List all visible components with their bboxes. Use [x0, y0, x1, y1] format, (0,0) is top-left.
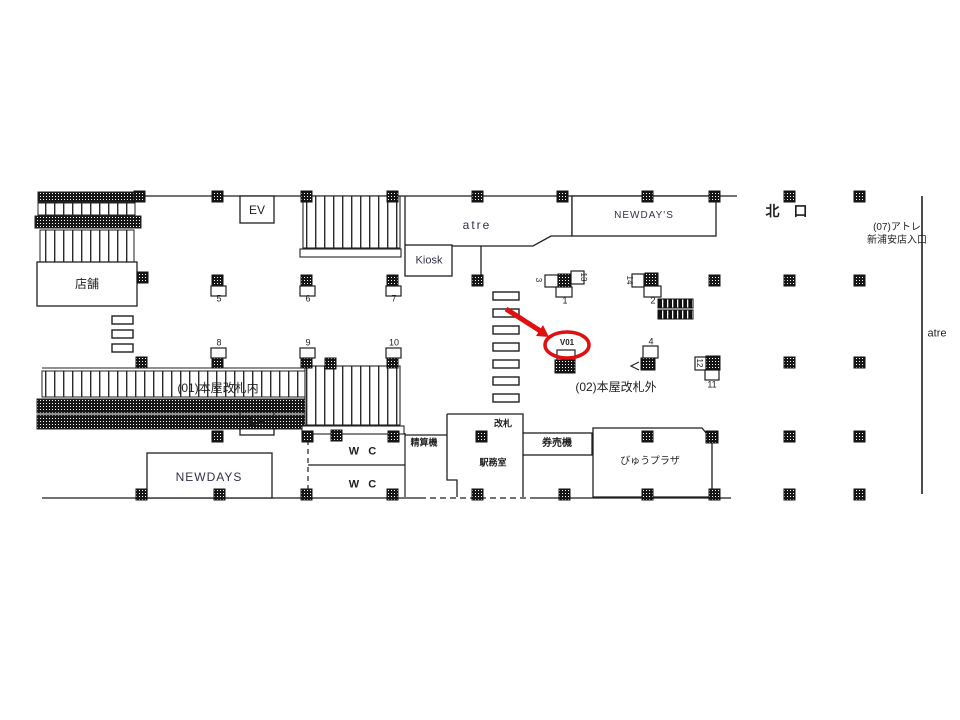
- floorplan-drawing: [0, 0, 960, 720]
- zone-inside-gates-label: (01)本屋改札内: [177, 382, 258, 394]
- ad-number-13: 13: [579, 273, 587, 282]
- ad-number-3: 3: [534, 278, 542, 282]
- ad-number-14: 14: [625, 276, 633, 285]
- ad-number-8: 8: [216, 339, 221, 348]
- ad-number-12: 12: [695, 359, 703, 368]
- ad-number-10: 10: [389, 339, 399, 348]
- ad-number-5: 5: [216, 295, 221, 304]
- ad-number-9: 9: [305, 339, 310, 348]
- north-exit-label: 北 口: [766, 204, 813, 218]
- v01-label: V01: [560, 339, 574, 347]
- stairs-middle-left: [37, 368, 332, 429]
- ticket-vending-label: 券売機: [542, 439, 572, 449]
- view-plaza-label: びゅうプラザ: [620, 457, 680, 467]
- atre-area-label: atre: [463, 219, 492, 231]
- station-office-label: 駅務室: [479, 459, 506, 468]
- newdays-upper-label: NEWDAY'S: [614, 211, 674, 221]
- ad-number-1: 1: [562, 297, 567, 306]
- atre-entrance-label-line2: 新浦安店入口: [867, 236, 927, 246]
- fare-adjustment-label: 精算機: [410, 439, 437, 448]
- atre-right-edge-label: atre: [928, 329, 947, 340]
- ticket-gates-main: [493, 292, 519, 402]
- ticket-gates-left: [112, 316, 133, 352]
- wc-upper-label: W C: [349, 447, 379, 458]
- ad-number-7: 7: [391, 295, 396, 304]
- stairs-center: [302, 366, 404, 434]
- ad-number-11: 11: [707, 381, 716, 390]
- stairs-top-left: [35, 192, 141, 262]
- zone-outside-gates-label: (02)本屋改札外: [575, 381, 656, 393]
- stairs-down-small: [658, 299, 693, 319]
- store-label: 店舗: [75, 278, 99, 290]
- elevator-mid-label: EV: [249, 415, 265, 427]
- atre-entrance-label-line1: (07)アトレ: [873, 223, 921, 233]
- position4-tick: [631, 362, 639, 370]
- ad-number-6: 6: [305, 295, 310, 304]
- station-floorplan: 店舗 EV EV atre Kiosk NEWDAY'S 北 口 (07)アトレ…: [0, 0, 960, 720]
- ad-number-2: 2: [650, 297, 655, 306]
- ad-number-4: 4: [648, 338, 653, 347]
- elevator-top-label: EV: [249, 204, 265, 216]
- stairs-top-center: [300, 196, 401, 257]
- newdays-lower-label: NEWDAYS: [176, 471, 243, 483]
- ticket-gate-label: 改札: [494, 420, 512, 429]
- wc-lower-label: W C: [349, 480, 379, 491]
- kiosk-label: Kiosk: [416, 256, 443, 267]
